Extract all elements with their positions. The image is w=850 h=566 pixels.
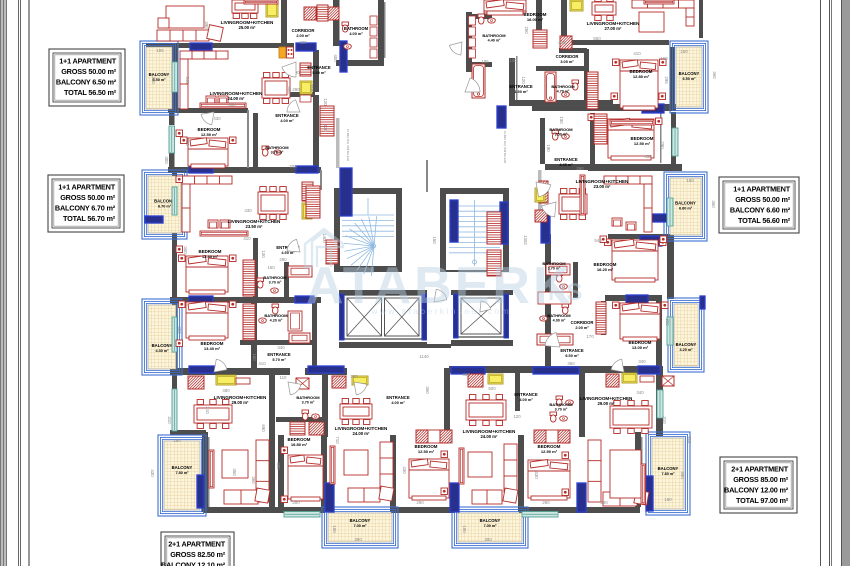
svg-text:290: 290 bbox=[542, 500, 550, 505]
svg-text:3.70 m²: 3.70 m² bbox=[555, 408, 568, 412]
svg-text:BALCONY: BALCONY bbox=[676, 342, 697, 347]
svg-text:13.00 m²: 13.00 m² bbox=[632, 345, 649, 350]
svg-text:25.00 m²: 25.00 m² bbox=[239, 25, 256, 30]
svg-text:BATHROOM: BATHROOM bbox=[265, 145, 289, 150]
svg-text:4.40 m²: 4.40 m² bbox=[488, 39, 501, 43]
svg-text:190: 190 bbox=[546, 144, 551, 152]
svg-text:4.00 m²: 4.00 m² bbox=[519, 397, 533, 402]
svg-text:360: 360 bbox=[425, 386, 430, 394]
svg-text:TOTAL 97.00 m²: TOTAL 97.00 m² bbox=[736, 496, 789, 505]
svg-text:2.00 m²: 2.00 m² bbox=[575, 325, 589, 330]
svg-text:23.50 m²: 23.50 m² bbox=[246, 224, 263, 229]
svg-text:120: 120 bbox=[521, 76, 526, 84]
svg-text:700: 700 bbox=[289, 164, 297, 169]
svg-text:BALCONY 6.70 m²: BALCONY 6.70 m² bbox=[55, 204, 116, 213]
svg-text:24.00 m²: 24.00 m² bbox=[228, 96, 245, 101]
svg-text:4.00 m²: 4.00 m² bbox=[349, 31, 363, 36]
svg-text:27.00 m²: 27.00 m² bbox=[605, 26, 622, 31]
svg-text:360: 360 bbox=[151, 76, 156, 84]
svg-text:BATHROOM: BATHROOM bbox=[551, 84, 575, 89]
svg-text:150: 150 bbox=[432, 236, 437, 244]
svg-text:CORRIDOR: CORRIDOR bbox=[571, 320, 594, 325]
svg-text:3.70 m²: 3.70 m² bbox=[269, 281, 282, 285]
svg-text:BATHROOM: BATHROOM bbox=[263, 275, 287, 280]
svg-text:290: 290 bbox=[292, 500, 300, 505]
svg-text:160: 160 bbox=[660, 56, 668, 61]
svg-text:110: 110 bbox=[280, 375, 288, 380]
svg-text:7.00 m²: 7.00 m² bbox=[484, 524, 498, 528]
svg-text:295: 295 bbox=[664, 76, 669, 84]
svg-text:300: 300 bbox=[299, 40, 307, 45]
svg-text:1140: 1140 bbox=[419, 354, 429, 359]
svg-text:120: 120 bbox=[513, 414, 521, 419]
svg-text:4.40 m²: 4.40 m² bbox=[559, 162, 573, 167]
svg-text:6.50 m²: 6.50 m² bbox=[683, 77, 697, 81]
svg-text:24.00 m²: 24.00 m² bbox=[353, 431, 370, 436]
svg-text:290: 290 bbox=[600, 500, 608, 505]
svg-text:690: 690 bbox=[261, 424, 266, 432]
svg-text:2.00 m²: 2.00 m² bbox=[296, 33, 310, 38]
svg-text:360: 360 bbox=[711, 200, 716, 208]
svg-text:185: 185 bbox=[481, 59, 489, 64]
svg-text:290: 290 bbox=[292, 87, 300, 92]
svg-text:430: 430 bbox=[402, 466, 407, 474]
svg-text:290: 290 bbox=[416, 500, 424, 505]
svg-text:BALCONY: BALCONY bbox=[152, 343, 173, 348]
svg-text:GROSS 50.00 m²: GROSS 50.00 m² bbox=[735, 195, 791, 204]
svg-text:16.20 m²: 16.20 m² bbox=[597, 267, 614, 272]
svg-text:BALCONY 6.60 m²: BALCONY 6.60 m² bbox=[730, 206, 791, 215]
svg-text:120: 120 bbox=[323, 124, 328, 132]
svg-text:CORRIDOR: CORRIDOR bbox=[292, 28, 315, 33]
svg-text:ENTRANCE: ENTRANCE bbox=[267, 352, 290, 357]
svg-text:190: 190 bbox=[173, 438, 181, 443]
svg-text:ENTRANCE: ENTRANCE bbox=[554, 157, 577, 162]
svg-text:390: 390 bbox=[204, 21, 209, 29]
svg-text:300: 300 bbox=[177, 326, 182, 334]
svg-text:4.00 m²: 4.00 m² bbox=[280, 118, 294, 123]
svg-text:430: 430 bbox=[244, 208, 252, 213]
svg-text:390: 390 bbox=[484, 537, 492, 542]
svg-text:1.50 m²: 1.50 m² bbox=[514, 89, 528, 94]
svg-text:350: 350 bbox=[232, 468, 237, 476]
svg-text:4.30 m²: 4.30 m² bbox=[156, 349, 170, 353]
svg-text:130: 130 bbox=[509, 58, 517, 63]
svg-text:GROSS 82.50 m²: GROSS 82.50 m² bbox=[170, 550, 226, 559]
svg-text:400: 400 bbox=[680, 471, 685, 479]
svg-text:360: 360 bbox=[183, 246, 188, 254]
svg-text:480: 480 bbox=[276, 462, 281, 470]
svg-text:12.80 m²: 12.80 m² bbox=[633, 74, 650, 79]
svg-text:150: 150 bbox=[252, 353, 257, 361]
svg-text:290: 290 bbox=[279, 257, 287, 262]
svg-text:190: 190 bbox=[664, 497, 672, 502]
svg-text:ENTRANCE: ENTRANCE bbox=[307, 65, 330, 70]
svg-text:360: 360 bbox=[350, 374, 358, 379]
svg-text:12.50 m²: 12.50 m² bbox=[418, 449, 435, 454]
svg-text:3.50 m²: 3.50 m² bbox=[555, 133, 568, 137]
svg-text:410: 410 bbox=[243, 236, 251, 241]
svg-text:4.20 m²: 4.20 m² bbox=[270, 319, 283, 323]
svg-text:300: 300 bbox=[665, 318, 670, 326]
svg-text:410: 410 bbox=[258, 361, 266, 366]
svg-text:CORRIDOR: CORRIDOR bbox=[556, 54, 579, 59]
svg-text:3.00 m²: 3.00 m² bbox=[560, 59, 574, 64]
svg-text:GROSS 50.00 m²: GROSS 50.00 m² bbox=[61, 67, 117, 76]
svg-text:460: 460 bbox=[462, 372, 470, 377]
svg-text:6.50 m²: 6.50 m² bbox=[565, 353, 579, 358]
svg-text:430: 430 bbox=[213, 116, 221, 121]
svg-text:110: 110 bbox=[687, 437, 692, 445]
svg-text:2+1 APARTMENT: 2+1 APARTMENT bbox=[168, 539, 226, 548]
svg-text:290: 290 bbox=[576, 166, 584, 171]
svg-text:340: 340 bbox=[636, 390, 644, 395]
svg-text:BATHROOM: BATHROOM bbox=[296, 395, 320, 400]
svg-text:BATHROOM: BATHROOM bbox=[549, 127, 573, 132]
svg-text:w w w . a t a b e r: w w w . a t a b e r k i n s a a t . c o … bbox=[370, 306, 508, 316]
svg-text:180: 180 bbox=[686, 178, 694, 183]
svg-text:430: 430 bbox=[644, 154, 652, 159]
svg-text:410: 410 bbox=[633, 51, 641, 56]
svg-text:1352: 1352 bbox=[523, 235, 528, 245]
svg-text:BATHROOM: BATHROOM bbox=[549, 402, 573, 407]
svg-text:BALCONY: BALCONY bbox=[172, 465, 193, 470]
svg-text:550: 550 bbox=[593, 36, 601, 41]
svg-text:120: 120 bbox=[323, 98, 328, 106]
svg-text:12.50 m²: 12.50 m² bbox=[541, 449, 558, 454]
svg-text:BATHROOM: BATHROOM bbox=[264, 313, 288, 318]
svg-text:180: 180 bbox=[680, 49, 688, 54]
svg-text:GROSS 50.00 m²: GROSS 50.00 m² bbox=[60, 193, 116, 202]
svg-text:3.70 m²: 3.70 m² bbox=[271, 151, 284, 155]
svg-text:KLİMA DIŞ ÜNİTELERİ: KLİMA DIŞ ÜNİTELERİ bbox=[346, 129, 351, 161]
svg-text:5.70 m²: 5.70 m² bbox=[272, 357, 286, 362]
svg-text:360: 360 bbox=[712, 71, 717, 79]
svg-text:1+1 APARTMENT: 1+1 APARTMENT bbox=[59, 56, 117, 65]
svg-text:BALCONY 12.00 m²: BALCONY 12.00 m² bbox=[724, 486, 789, 495]
svg-text:340: 340 bbox=[185, 76, 190, 84]
svg-text:340: 340 bbox=[277, 345, 285, 350]
svg-text:480: 480 bbox=[448, 436, 453, 444]
svg-text:ENTRANCE: ENTRANCE bbox=[514, 392, 537, 397]
svg-text:7.80 m²: 7.80 m² bbox=[662, 472, 676, 476]
svg-text:310: 310 bbox=[205, 406, 210, 414]
svg-text:130: 130 bbox=[261, 250, 266, 258]
svg-text:4.20 m²: 4.20 m² bbox=[680, 348, 694, 352]
svg-text:480: 480 bbox=[222, 388, 230, 393]
svg-text:BALCONY 12.10 m²: BALCONY 12.10 m² bbox=[161, 561, 226, 566]
svg-text:7.80 m²: 7.80 m² bbox=[176, 471, 190, 475]
svg-text:4.00 m²: 4.00 m² bbox=[391, 400, 405, 405]
svg-text:ENTRANCE: ENTRANCE bbox=[275, 113, 298, 118]
svg-text:BALCONY: BALCONY bbox=[350, 518, 371, 523]
svg-text:BALCONY: BALCONY bbox=[480, 518, 501, 523]
svg-text:360: 360 bbox=[251, 476, 256, 484]
svg-text:GROSS 85.00 m²: GROSS 85.00 m² bbox=[733, 475, 789, 484]
svg-text:190: 190 bbox=[559, 116, 564, 124]
svg-text:KLİMA DIŞ ÜNİTELERİ: KLİMA DIŞ ÜNİTELERİ bbox=[503, 131, 508, 163]
svg-text:185: 185 bbox=[156, 48, 164, 53]
svg-text:4.70 m²: 4.70 m² bbox=[557, 90, 570, 94]
svg-text:ENTRANCE: ENTRANCE bbox=[386, 395, 409, 400]
svg-text:13.40 m²: 13.40 m² bbox=[204, 346, 221, 351]
svg-text:12.50 m²: 12.50 m² bbox=[634, 141, 651, 146]
svg-text:ENTRANCE: ENTRANCE bbox=[509, 84, 532, 89]
svg-text:430: 430 bbox=[534, 471, 539, 479]
svg-text:29.00 m²: 29.00 m² bbox=[598, 401, 615, 406]
svg-text:BATHROOM: BATHROOM bbox=[344, 26, 369, 31]
svg-text:12.50 m²: 12.50 m² bbox=[201, 132, 218, 137]
svg-text:5.50 m²: 5.50 m² bbox=[312, 70, 326, 75]
svg-text:BALCONY: BALCONY bbox=[679, 71, 700, 76]
svg-text:310: 310 bbox=[167, 416, 172, 424]
svg-text:300: 300 bbox=[164, 156, 169, 164]
svg-text:390: 390 bbox=[354, 537, 362, 542]
svg-text:360: 360 bbox=[567, 361, 575, 366]
svg-text:180: 180 bbox=[462, 525, 467, 533]
svg-text:BALCONY: BALCONY bbox=[658, 466, 679, 471]
svg-text:TOTAL 56.50 m²: TOTAL 56.50 m² bbox=[64, 88, 117, 97]
svg-text:BALCONY: BALCONY bbox=[675, 201, 696, 206]
svg-text:170: 170 bbox=[586, 334, 594, 339]
svg-text:310: 310 bbox=[662, 416, 667, 424]
svg-text:710: 710 bbox=[335, 436, 340, 444]
svg-text:1+1 APARTMENT: 1+1 APARTMENT bbox=[733, 184, 791, 193]
svg-text:3.70 m²: 3.70 m² bbox=[302, 401, 315, 405]
svg-text:340: 340 bbox=[638, 359, 646, 364]
svg-text:160: 160 bbox=[267, 265, 275, 270]
svg-text:290: 290 bbox=[660, 141, 665, 149]
svg-text:250: 250 bbox=[524, 26, 529, 34]
svg-text:400: 400 bbox=[333, 54, 338, 62]
svg-text:29.00 m²: 29.00 m² bbox=[232, 400, 249, 405]
svg-text:2+1 APARTMENT: 2+1 APARTMENT bbox=[731, 464, 789, 473]
svg-text:460: 460 bbox=[185, 138, 190, 146]
svg-text:540: 540 bbox=[594, 238, 602, 243]
svg-text:23.00 m²: 23.00 m² bbox=[594, 184, 611, 189]
svg-text:6.60 m²: 6.60 m² bbox=[679, 206, 693, 210]
svg-text:410: 410 bbox=[228, 102, 236, 107]
svg-text:16.00 m²: 16.00 m² bbox=[527, 17, 544, 22]
svg-text:180: 180 bbox=[332, 525, 337, 533]
svg-text:ENTRANCE: ENTRANCE bbox=[560, 348, 583, 353]
svg-text:460: 460 bbox=[287, 86, 292, 94]
svg-text:24.00 m²: 24.00 m² bbox=[481, 434, 498, 439]
svg-text:7.00 m²: 7.00 m² bbox=[354, 524, 368, 528]
svg-text:TOTAL 56.70 m²: TOTAL 56.70 m² bbox=[63, 214, 116, 223]
svg-text:12.30 m²: 12.30 m² bbox=[202, 254, 219, 259]
svg-text:TOTAL 56.60 m²: TOTAL 56.60 m² bbox=[738, 216, 791, 225]
svg-text:1+1 APARTMENT: 1+1 APARTMENT bbox=[58, 182, 116, 191]
svg-text:4.00 m²: 4.00 m² bbox=[553, 319, 566, 323]
svg-text:NS: NS bbox=[548, 279, 583, 306]
svg-text:16.80 m²: 16.80 m² bbox=[291, 442, 308, 447]
svg-text:430: 430 bbox=[150, 469, 155, 477]
svg-text:BATHROOM: BATHROOM bbox=[482, 33, 506, 38]
svg-text:420: 420 bbox=[558, 40, 566, 45]
svg-text:500: 500 bbox=[488, 386, 496, 391]
svg-text:BALCONY 6.50 m²: BALCONY 6.50 m² bbox=[56, 78, 117, 87]
svg-text:110: 110 bbox=[309, 85, 314, 93]
svg-text:6.70 m²: 6.70 m² bbox=[158, 204, 172, 208]
